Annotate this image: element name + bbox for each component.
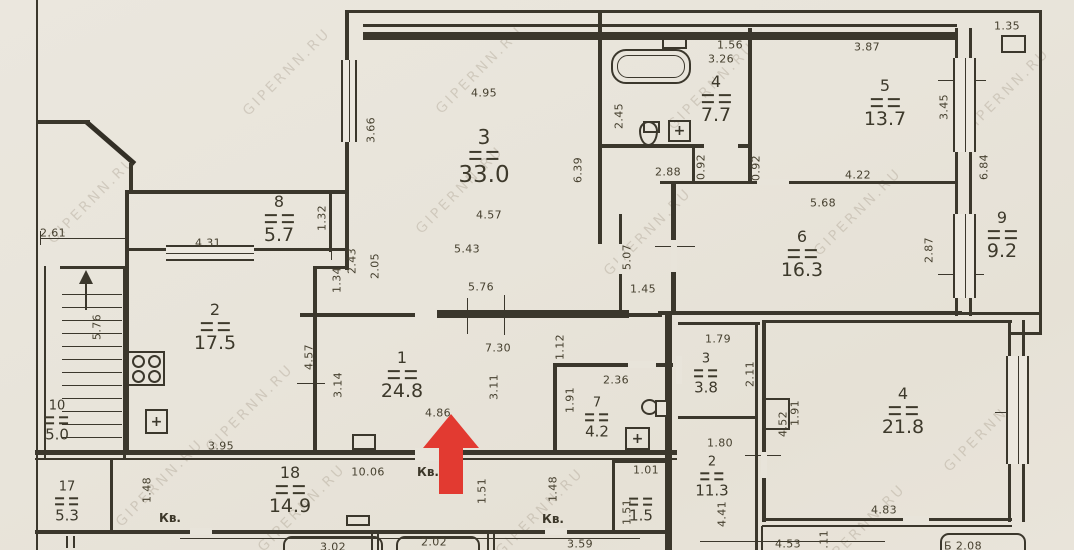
box-icon (352, 434, 376, 450)
stair-step (62, 398, 122, 399)
watermark: GIPERNN.RU (601, 185, 695, 279)
room-label-3-right: 3 3.8 (694, 352, 718, 395)
wall (487, 530, 489, 550)
tub-icon (611, 49, 691, 84)
dimension-label: 10.06 (351, 466, 385, 479)
dimension-label: 7.30 (485, 342, 511, 355)
stair-step (62, 307, 122, 308)
stair-step (62, 411, 122, 412)
room-area: 5.7 (264, 226, 294, 246)
wall (73, 536, 75, 548)
dimension-label: 1.48 (141, 477, 154, 503)
dimension-label: 1.56 (717, 39, 743, 52)
room-number: 17 (59, 480, 76, 494)
watermark: GIPERNN.RU (240, 25, 334, 119)
box-icon (346, 515, 370, 526)
sink-icon: + (625, 427, 650, 450)
toilet-h-icon (641, 399, 658, 415)
window (953, 58, 976, 152)
dimension-label: 6.39 (572, 157, 585, 183)
room-label-4-right: 4 21.8 (882, 386, 924, 438)
wall (35, 450, 677, 455)
room-area: 11.3 (695, 483, 728, 499)
dimension-label: 2.36 (603, 374, 629, 387)
wall (678, 416, 758, 419)
dimension-label: 1.79 (705, 333, 731, 346)
wall (345, 10, 1042, 13)
room-area: 3.8 (694, 380, 718, 396)
room-area: 9.2 (987, 242, 1017, 262)
dimension-label: 5.68 (810, 197, 836, 210)
wall (297, 383, 325, 384)
dimension-label: 0.92 (750, 155, 763, 181)
room-area: 33.0 (458, 163, 509, 187)
dimension-label: 4.31 (195, 237, 221, 250)
stair-step (62, 385, 122, 386)
wall (493, 530, 495, 550)
wall (755, 322, 758, 550)
room-area: 24.8 (381, 382, 423, 402)
wall (762, 518, 1012, 521)
room-number: 3 (702, 352, 710, 366)
wall (377, 530, 379, 550)
room-number: 3 (478, 127, 491, 148)
dimension-label: 2.02 (421, 536, 447, 549)
window (1006, 356, 1029, 464)
dimension-label: 2.05 (369, 253, 382, 279)
room-label-18: 18 14.9 (269, 465, 311, 517)
vent-box-icon (662, 34, 687, 49)
sink-icon: + (668, 120, 691, 142)
room-area: 1.5 (629, 509, 653, 525)
dimension-label: 3.11 (488, 374, 501, 400)
area-separator (201, 322, 230, 331)
wall (762, 320, 1012, 323)
wall (598, 12, 602, 244)
room-area: 5.3 (55, 508, 79, 524)
wall (35, 458, 677, 460)
wall (755, 526, 757, 550)
dimension-label: 2.88 (655, 166, 681, 179)
room-number: 8 (274, 194, 284, 211)
dimension-label: 2.11 (744, 361, 757, 387)
dimension-label: 2.61 (40, 227, 66, 240)
room-area: 14.9 (269, 497, 311, 517)
wall (762, 525, 1012, 527)
area-separator (701, 472, 724, 480)
door-opening (628, 361, 656, 368)
room-label-10: 10 5.0 (45, 399, 69, 442)
dimension-label: 1.11 (818, 530, 831, 550)
room-number: 2 (210, 302, 220, 319)
room-number: 9 (997, 210, 1007, 227)
room-label-6: 6 16.3 (781, 229, 823, 281)
room-label-1-hall: 1 24.8 (381, 350, 423, 402)
room-number: 4 (711, 74, 721, 91)
dimension-label: 1.12 (554, 334, 567, 360)
dimension-label: 4.52 (777, 411, 790, 437)
dimension-label: Б 2.08 (944, 540, 982, 550)
door-opening (415, 310, 437, 319)
wall (363, 32, 957, 40)
wall (761, 526, 763, 550)
dimension-label: 5.43 (454, 243, 480, 256)
area-separator (702, 94, 731, 103)
dimension-label: 2.43 (346, 248, 359, 274)
door-opening (761, 452, 767, 478)
room-label-4-bathroom: 4 7.7 (701, 74, 731, 126)
room-area: 7.7 (701, 106, 731, 126)
room-number: 6 (797, 229, 807, 246)
wall (125, 248, 169, 251)
wall (66, 536, 68, 548)
dimension-label: 1.48 (547, 476, 560, 502)
dimension-label: 0.92 (695, 154, 708, 180)
door-opening (190, 528, 212, 535)
door-opening (676, 356, 682, 384)
apartment-door-label: Кв. (159, 511, 181, 525)
dimension-label: 1.32 (316, 205, 329, 231)
stairs-up-arrow-icon (79, 270, 93, 284)
dimension-label: 4.83 (871, 504, 897, 517)
wall (129, 163, 133, 193)
dimension-label: 2.87 (923, 237, 936, 263)
dimension-label: 4.57 (476, 209, 502, 222)
room-area: 13.7 (864, 110, 906, 130)
wall (38, 120, 90, 124)
dimension-label: 1.01 (633, 464, 659, 477)
room-number: 1 (397, 350, 407, 367)
dimension-label: 3.45 (938, 94, 951, 120)
wall (35, 530, 667, 534)
stair-step (62, 346, 122, 347)
room-number: 18 (280, 465, 300, 482)
dimension-label: 3.59 (567, 538, 593, 550)
area-separator (470, 151, 499, 160)
room-number: 4 (898, 386, 908, 403)
room-label-7-wc: 7 4.2 (585, 396, 609, 439)
room-label-2-kitchen: 2 17.5 (194, 302, 236, 354)
dimension-label: 4.41 (716, 501, 729, 527)
stair-step (62, 294, 122, 295)
wall (331, 190, 332, 260)
wall (658, 311, 962, 315)
dimension-label: 1.45 (630, 283, 656, 296)
door-opening (671, 240, 677, 272)
wall (110, 460, 113, 532)
wall (619, 214, 622, 246)
dimension-label: 3.66 (365, 117, 378, 143)
room-label-8: 8 5.7 (264, 194, 294, 246)
room-area: 5.0 (45, 427, 69, 443)
area-separator (45, 416, 68, 424)
wall-diagonal (85, 120, 137, 166)
dimension-label: 4.53 (775, 538, 801, 550)
dimension-label: 3.02 (320, 541, 346, 550)
dimension-label: 5.07 (621, 244, 634, 270)
room-label-17: 17 5.3 (55, 480, 79, 523)
area-separator (265, 214, 294, 223)
stair-step (62, 437, 122, 438)
dimension-label: 3.87 (854, 41, 880, 54)
dimension-label: 1.34 (331, 267, 344, 293)
stair-step (62, 424, 122, 425)
wall (433, 310, 629, 318)
area-separator (388, 370, 417, 379)
wall (125, 190, 349, 194)
wall (1008, 332, 1042, 335)
area-separator (988, 230, 1017, 239)
wall (126, 231, 127, 245)
room-number: 10 (49, 399, 66, 413)
wall (678, 322, 760, 325)
room-area: 4.2 (585, 424, 609, 440)
floor-plan: 3 33.0 4 7.7 5 13.7 6 16.3 9 9.2 8 5.7 2… (0, 0, 1074, 550)
room-number: 2 (708, 455, 716, 469)
window (953, 214, 976, 298)
room-area: 21.8 (882, 418, 924, 438)
wall (665, 313, 672, 550)
wall (371, 530, 373, 550)
window (341, 60, 357, 142)
area-separator (694, 369, 717, 377)
dimension-label: 5.76 (91, 314, 104, 340)
area-separator (871, 98, 900, 107)
room-area: 16.3 (781, 261, 823, 281)
wall (363, 24, 957, 27)
wall (955, 312, 1042, 315)
stove-icon (127, 351, 165, 386)
door-opening (545, 528, 567, 535)
dimension-label: 4.57 (303, 344, 316, 370)
wall (660, 181, 958, 184)
stair-step (62, 372, 122, 373)
red-arrow-marker (422, 412, 482, 496)
area-separator (889, 406, 918, 415)
area-separator (788, 249, 817, 258)
wall (467, 298, 468, 334)
dimension-label: 5.76 (468, 281, 494, 294)
box-icon (1001, 35, 1026, 53)
wall (250, 248, 349, 251)
dimension-label: 1.35 (994, 20, 1020, 33)
wall (612, 460, 615, 532)
dimension-label: 6.84 (978, 154, 991, 180)
wall (36, 0, 38, 550)
door-opening (903, 516, 929, 525)
room-number: 5 (880, 78, 890, 95)
area-separator (629, 498, 652, 506)
wall (60, 266, 126, 269)
area-separator (276, 485, 305, 494)
room-label-1-5: 1.5 (629, 496, 653, 525)
area-separator (55, 497, 78, 505)
room-label-2-right: 2 11.3 (695, 455, 728, 498)
apartment-door-label: Кв. (542, 512, 564, 526)
area-separator (585, 413, 608, 421)
room-label-9: 9 9.2 (987, 210, 1017, 262)
wall (504, 295, 505, 335)
wall (553, 363, 557, 450)
dimension-label: 1.80 (707, 437, 733, 450)
dimension-label: 4.22 (845, 169, 871, 182)
dimension-label: 1.91 (789, 400, 802, 426)
wall (123, 266, 126, 458)
room-number: 7 (593, 396, 601, 410)
dimension-label: 3.95 (208, 440, 234, 453)
sink-icon: + (145, 409, 168, 434)
room-label-3-living: 3 33.0 (458, 127, 509, 187)
dimension-label: 3.14 (332, 372, 345, 398)
dimension-label: 1.91 (564, 387, 577, 413)
dimension-label: 3.26 (708, 53, 734, 66)
toilet-v-icon (639, 121, 658, 146)
room-label-5: 5 13.7 (864, 78, 906, 130)
dimension-label: 2.45 (613, 103, 626, 129)
wall (1039, 10, 1042, 334)
stair-step (62, 359, 122, 360)
dimension-label: 4.95 (471, 87, 497, 100)
room-area: 17.5 (194, 334, 236, 354)
door-opening (704, 143, 738, 149)
